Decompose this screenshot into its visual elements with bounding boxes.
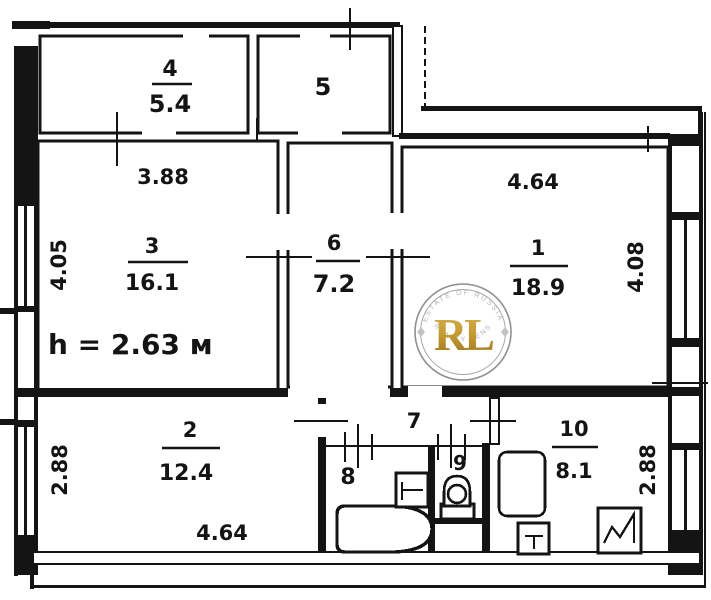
- window-right-room10: [684, 450, 687, 530]
- room-1-dim-right: 4.08: [624, 241, 648, 293]
- room-1-number: 1: [531, 236, 546, 260]
- scan-break: [300, 33, 330, 38]
- floor-plan-page: 4 5.4 5 3.88 3 16.1 4.05 h = 2.63 м 6 7.…: [0, 0, 711, 600]
- room-1-area: 18.9: [511, 276, 565, 301]
- window-cap: [14, 420, 38, 427]
- room-2-dim-bottom: 4.64: [196, 521, 248, 545]
- watermark-monogram: RL: [434, 309, 493, 360]
- room-2-area: 12.4: [159, 461, 213, 486]
- toilet-seat: [448, 485, 466, 503]
- wall-bottom-left-step: [30, 552, 34, 589]
- room-6-number: 6: [327, 231, 342, 255]
- wall-band-left: [18, 388, 278, 397]
- door-gap-room3-room6: [276, 214, 290, 250]
- room-labels: 4 5.4 5 3.88 3 16.1 4.05 h = 2.63 м 6 7.…: [47, 57, 660, 545]
- door-ticks: [117, 8, 648, 468]
- room-7-number: 7: [407, 409, 422, 433]
- balcony-fin: [0, 419, 16, 425]
- kitchen-sink: [518, 523, 549, 554]
- scan-break: [183, 33, 209, 38]
- window-cap: [668, 443, 703, 450]
- door-gap-room4: [142, 129, 176, 136]
- cabinet: [499, 452, 545, 516]
- wall-room9-room10: [482, 443, 490, 553]
- balcony-fin: [0, 308, 16, 314]
- window-right-room1: [684, 220, 687, 338]
- door-gap-room5: [298, 129, 342, 136]
- door-gap-room6-room7: [290, 384, 388, 398]
- door-gap-band: [408, 386, 442, 399]
- wall-band-junction: [278, 388, 288, 397]
- window-cap: [668, 338, 703, 347]
- room-3-dim-left: 4.05: [47, 239, 71, 291]
- room-2-dim-left: 2.88: [48, 444, 72, 496]
- room-5-number: 5: [315, 73, 332, 101]
- room-9-number: 9: [453, 451, 467, 475]
- room-2-number: 2: [183, 418, 198, 442]
- window-cap: [668, 212, 703, 220]
- room-3-number: 3: [145, 234, 160, 258]
- window-left-room2: [24, 427, 27, 535]
- wall-room5-right: [393, 26, 402, 136]
- room-3-dim-top: 3.88: [137, 165, 189, 189]
- room-10-dim-right: 2.88: [636, 444, 660, 496]
- floor-plan-drawing: 4 5.4 5 3.88 3 16.1 4.05 h = 2.63 м 6 7.…: [0, 0, 711, 600]
- balcony-edge-right: [704, 112, 706, 588]
- wall-top-left-corner: [12, 21, 50, 29]
- room-6-outline: [288, 143, 392, 387]
- room-4-area: 5.4: [149, 90, 192, 118]
- window-left-room3: [24, 206, 27, 306]
- room-4-outline: [40, 36, 248, 133]
- room-4-number: 4: [162, 57, 177, 82]
- wall-top: [12, 22, 400, 28]
- wall-right-band: [668, 134, 703, 146]
- window-cap: [668, 530, 703, 538]
- watermark-logo: ESTATE OF RUSSIA REALTY LENS RL: [415, 284, 511, 380]
- wall-right-band: [668, 387, 703, 396]
- room-6-area: 7.2: [313, 270, 356, 298]
- exterior-walls: [0, 21, 708, 589]
- room-10-number: 10: [559, 417, 588, 441]
- toilet: [441, 476, 474, 519]
- bathtub: [337, 506, 432, 552]
- room-10-area: 8.1: [555, 459, 592, 483]
- window-cap: [14, 306, 38, 312]
- door-gap-room6-room1: [390, 213, 404, 249]
- exterior-line-bottom: [30, 585, 706, 588]
- wall-notch-horizontal: [421, 106, 702, 111]
- wall-left-solid: [14, 46, 38, 206]
- ceiling-height-note: h = 2.63 м: [48, 328, 213, 361]
- stove: [598, 508, 641, 553]
- room-1-dim-top: 4.64: [507, 170, 559, 194]
- room-3-area: 16.1: [125, 271, 179, 296]
- room1-top-wall-outer: [399, 133, 670, 139]
- room-8-number: 8: [340, 465, 355, 490]
